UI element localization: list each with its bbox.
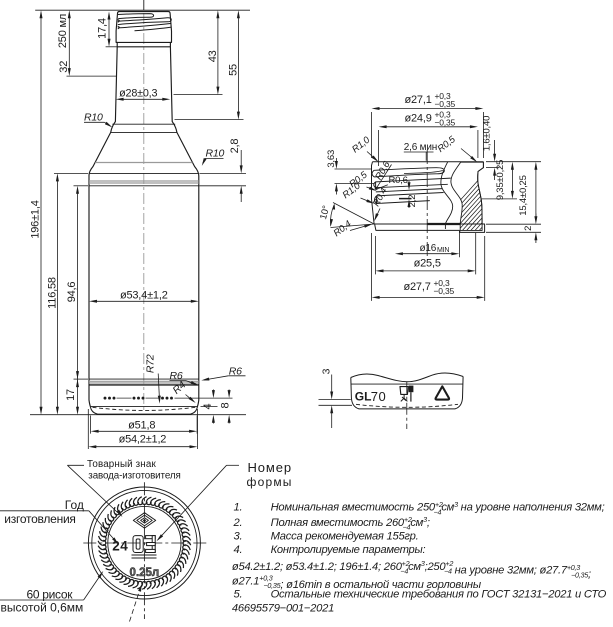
svg-text:ø16: ø16 [420,243,437,254]
svg-text:ø53,4±1,2: ø53,4±1,2 [120,289,168,301]
svg-text:формы: формы [247,475,293,489]
svg-text:43: 43 [207,50,219,62]
svg-text:1,6±0,40: 1,6±0,40 [481,116,492,151]
svg-text:MIN: MIN [437,247,449,254]
svg-text:2,6 мин: 2,6 мин [404,142,437,153]
svg-text:17,4: 17,4 [97,18,109,39]
svg-text:ø54,2±1,2: ø54,2±1,2 [119,434,167,446]
svg-text:Масса рекомендуемая 155гр.: Масса рекомендуемая 155гр. [271,530,419,542]
svg-text:70: 70 [371,389,386,404]
svg-text:ø27,1: ø27,1 [405,94,432,106]
svg-text:3.: 3. [234,530,243,542]
svg-text:60 рисок: 60 рисок [27,587,74,601]
svg-text:Товарный знак: Товарный знак [87,459,156,470]
svg-text:55: 55 [227,64,239,76]
svg-text:3: 3 [321,368,333,374]
svg-text:ø51,8: ø51,8 [128,419,155,431]
svg-text:ø27,7: ø27,7 [404,281,431,293]
svg-text:2: 2 [523,226,534,231]
svg-text:R10: R10 [84,112,103,124]
svg-text:4.: 4. [234,544,243,556]
svg-text:Год: Год [65,498,84,512]
svg-text:116,58: 116,58 [46,277,58,309]
svg-text:46695579−001−2021: 46695579−001−2021 [232,602,334,614]
svg-text:высотой 0,6мм: высотой 0,6мм [1,601,84,615]
svg-text:Контролируемые параметры:: Контролируемые параметры: [271,544,426,556]
svg-text:196±1,4: 196±1,4 [30,200,42,238]
svg-text:0.25л: 0.25л [130,567,160,579]
svg-text:−0,35: −0,35 [435,118,456,128]
svg-text:Остальные технические требован: Остальные технические требования по ГОСТ… [271,589,607,601]
svg-text:ø28±0,3: ø28±0,3 [119,87,157,99]
svg-text:−0,35: −0,35 [435,99,456,109]
svg-text:изготовления: изготовления [4,512,75,526]
svg-text:завода-изготовителя: завода-изготовителя [88,470,180,481]
svg-text:R72: R72 [144,354,156,373]
svg-text:ø25,5: ø25,5 [414,258,441,270]
svg-text:17: 17 [65,389,77,401]
svg-text:R10: R10 [206,148,225,160]
svg-text:2,8: 2,8 [229,139,241,154]
svg-text:GL: GL [355,390,372,404]
svg-text:5.: 5. [234,589,243,601]
svg-text:R0,6: R0,6 [389,175,408,186]
svg-text:ø24,9: ø24,9 [405,113,432,125]
svg-text:Номер: Номер [248,460,293,475]
svg-text:4: 4 [202,403,214,409]
svg-text:2.: 2. [233,517,243,529]
svg-text:−0,35: −0,35 [434,286,455,296]
svg-text:8: 8 [219,402,231,408]
svg-text:94,6: 94,6 [66,282,78,303]
svg-text:1.: 1. [234,502,243,514]
svg-text:250 мл: 250 мл [57,14,69,48]
svg-text:3,63: 3,63 [326,150,337,168]
svg-text:15,4±0,25: 15,4±0,25 [518,175,529,215]
svg-text:32: 32 [58,61,70,73]
svg-text:2,2: 2,2 [407,195,418,208]
svg-text:9,35±0,25: 9,35±0,25 [495,160,506,200]
